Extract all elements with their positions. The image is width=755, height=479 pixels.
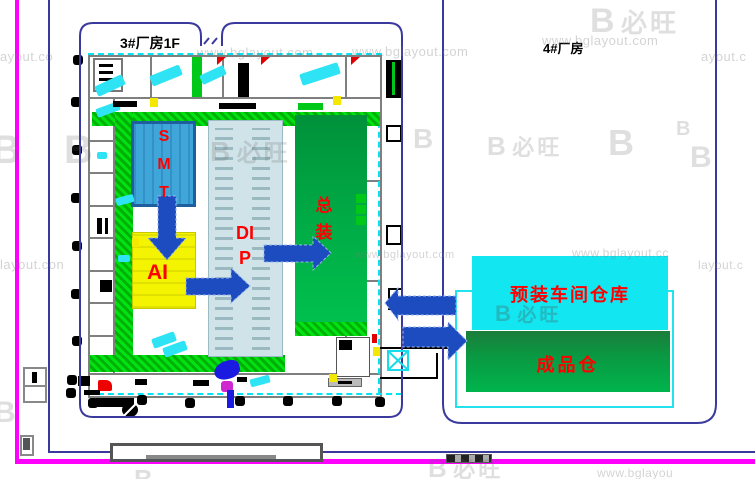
bwang-logo-watermark: B 必旺 <box>590 2 679 41</box>
outline-and-arrow-layer <box>0 0 755 479</box>
watermark-url: layout.con <box>0 257 64 272</box>
watermark-url: www.bglayout.com <box>355 249 455 261</box>
building3-outline <box>80 23 402 417</box>
ai-label: AI <box>147 261 187 285</box>
watermark-url: ayout.c <box>701 49 746 64</box>
watermark-url: www.bglayout.com <box>197 45 313 60</box>
bwang-logo-watermark: B <box>0 128 23 173</box>
bwang-logo-watermark: B <box>134 464 155 479</box>
factory-layout-diagram: B 必旺 3#厂房1F 4#厂房 S M T AI DI P 总 装 预装车间仓… <box>0 0 755 479</box>
bridge-bowtie-icon <box>388 351 408 370</box>
arrow-ai-to-dip <box>186 268 250 303</box>
smt-label: S M T <box>148 123 180 207</box>
bwang-logo-watermark: B <box>608 122 636 164</box>
bwang-logo-watermark: B 必旺 <box>210 133 291 168</box>
final-assembly-label: 总 装 <box>312 192 336 246</box>
bwang-logo-watermark: B <box>413 123 435 155</box>
watermark-url: layout.c <box>698 258 743 272</box>
watermark-url: www.bglayou <box>597 466 673 479</box>
bwang-logo-watermark: B <box>64 128 95 173</box>
dip-label: DI P <box>226 221 264 271</box>
watermark-url: www.bglayout.com <box>352 44 468 59</box>
bwang-logo-watermark: B B <box>676 118 714 175</box>
bwang-logo-watermark: B <box>0 396 18 430</box>
preassembly-warehouse-label: 预装车间仓库 <box>472 281 668 307</box>
watermark-url: www.bglayout.cc <box>572 246 669 260</box>
watermark-url: ayout.co <box>0 49 53 64</box>
arrow-warehouse-to-building3 <box>385 288 456 320</box>
finished-goods-label: 成品仓 <box>466 351 670 377</box>
bwang-logo-watermark: B 必旺 <box>428 452 503 479</box>
bwang-logo-watermark: B 必旺 <box>487 130 562 162</box>
arrow-assembly-to-warehouse <box>403 322 467 360</box>
